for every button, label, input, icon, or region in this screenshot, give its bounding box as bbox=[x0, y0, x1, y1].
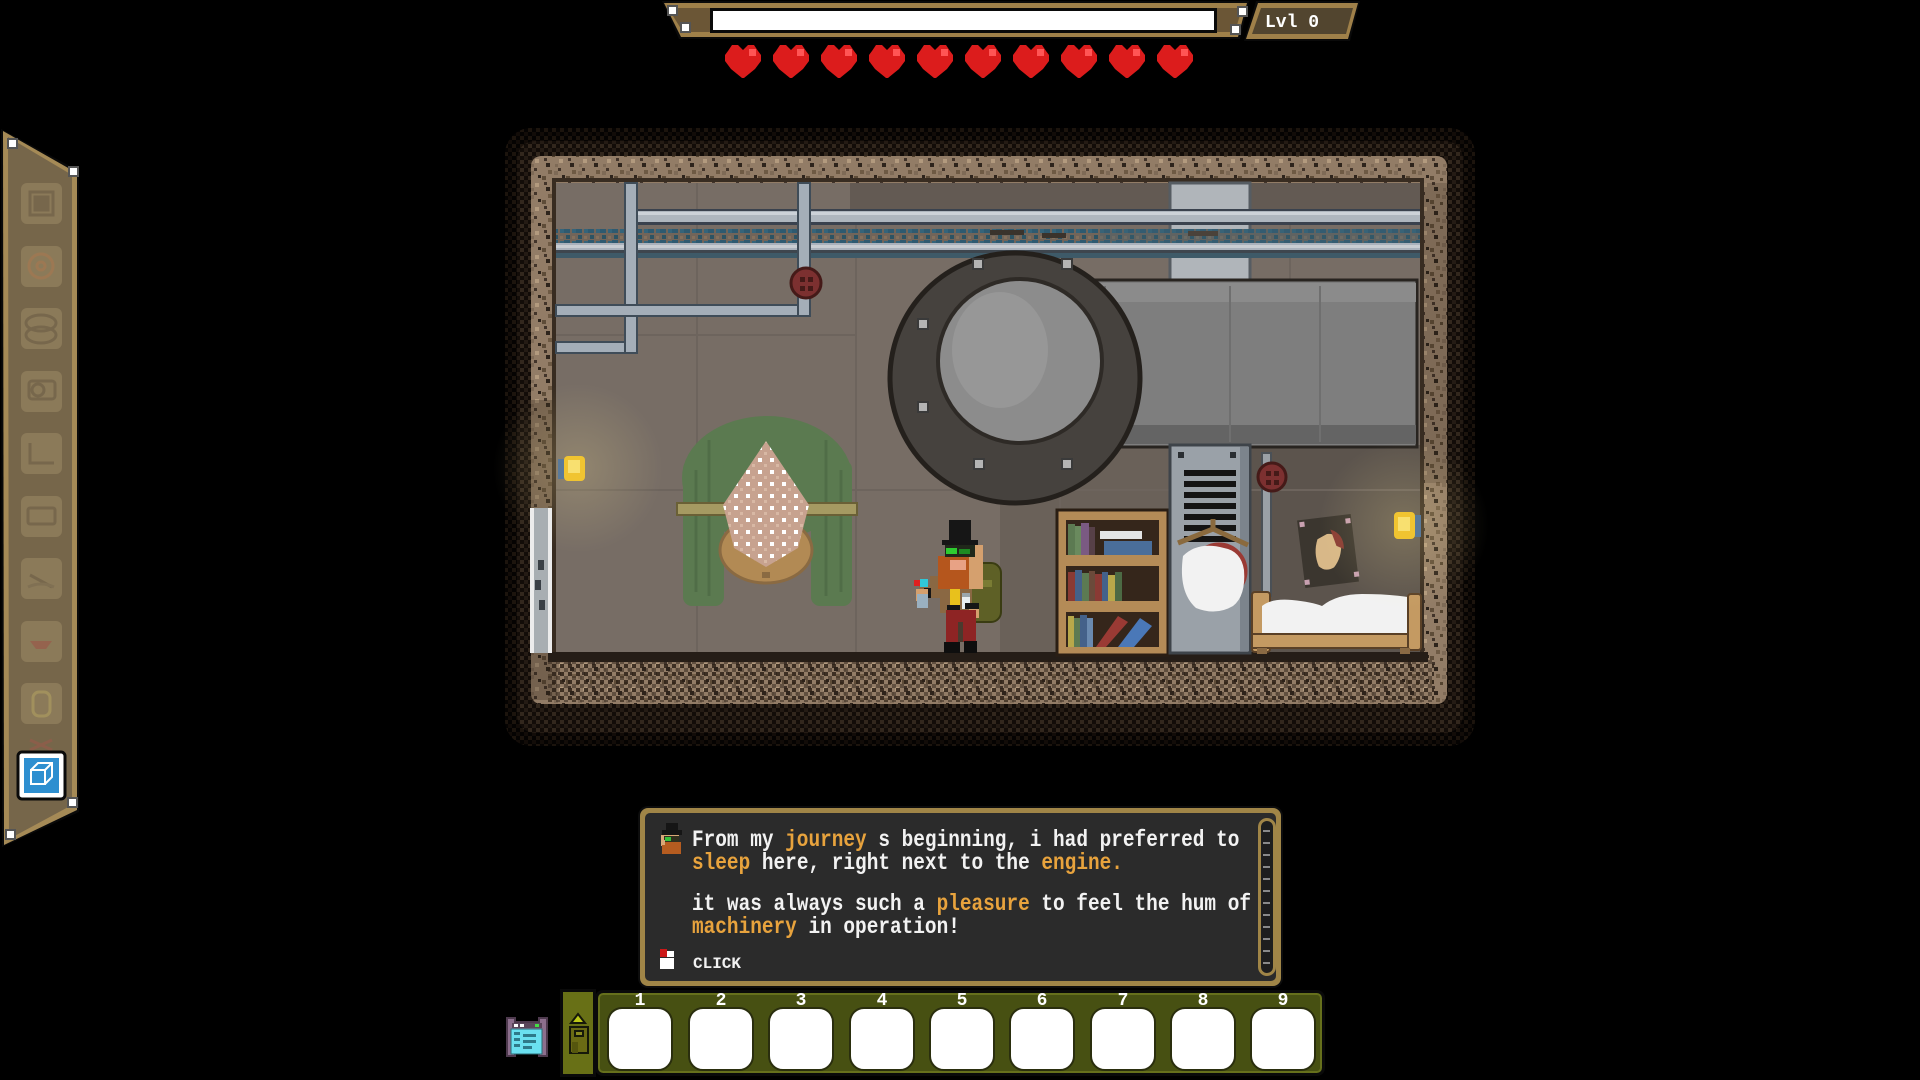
svg-text:8: 8 bbox=[1198, 991, 1209, 1011]
svg-text:4: 4 bbox=[877, 991, 888, 1011]
svg-text:7: 7 bbox=[1118, 991, 1129, 1011]
svg-text:6: 6 bbox=[1037, 991, 1048, 1011]
svg-text:5: 5 bbox=[957, 991, 968, 1011]
svg-text:2: 2 bbox=[716, 991, 727, 1011]
svg-text:Lvl 0: Lvl 0 bbox=[1265, 13, 1319, 33]
svg-text:9: 9 bbox=[1278, 991, 1289, 1011]
svg-text:1: 1 bbox=[635, 991, 646, 1011]
svg-text:3: 3 bbox=[796, 991, 807, 1011]
